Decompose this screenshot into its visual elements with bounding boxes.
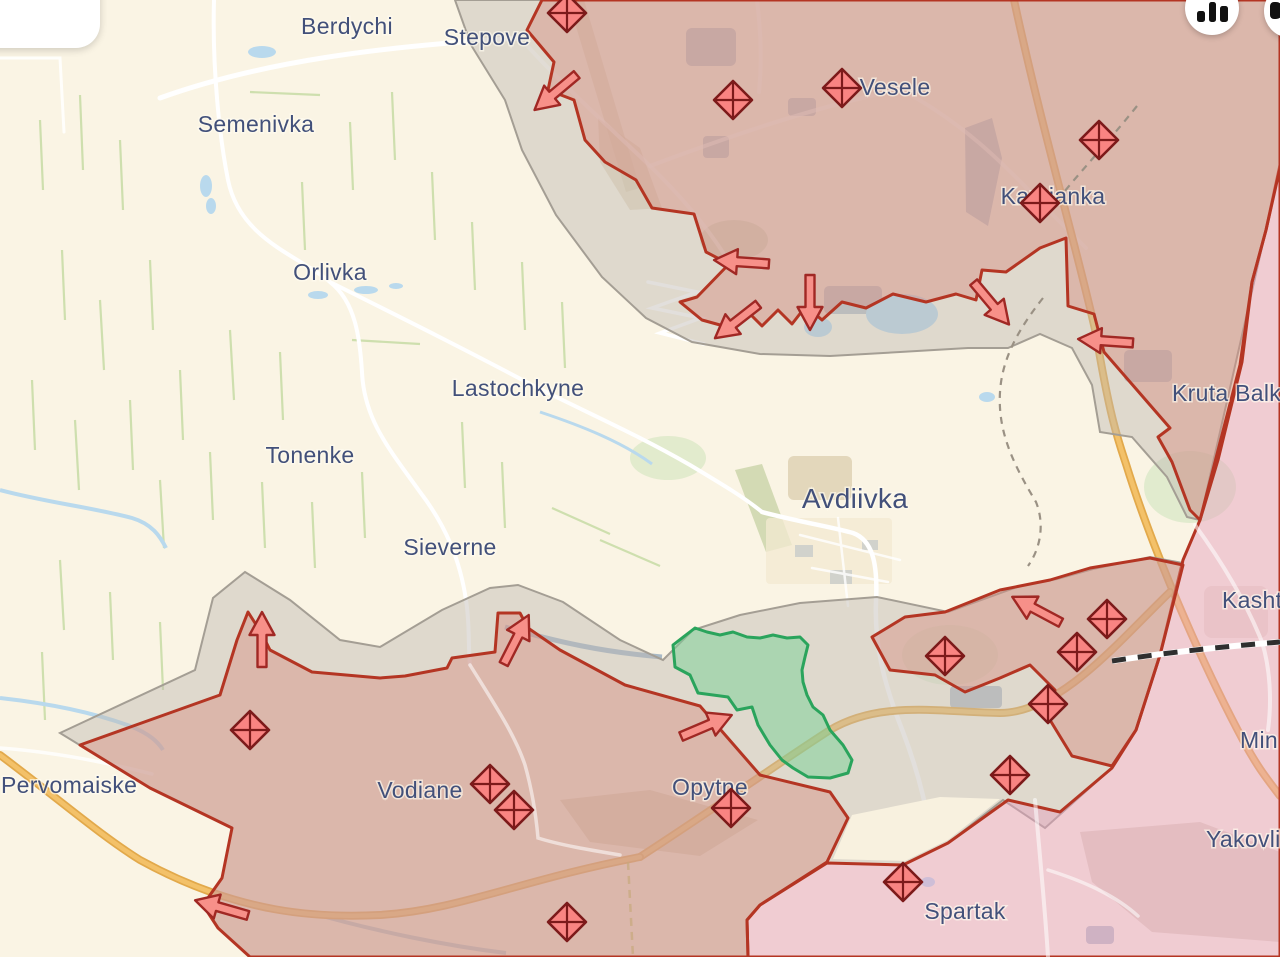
place-label-tonenke: Tonenke xyxy=(265,442,354,468)
place-label-sieverne: Sieverne xyxy=(403,534,496,560)
place-label-spartak: Spartak xyxy=(924,898,1006,924)
place-label-orlivka: Orlivka xyxy=(293,259,367,285)
war-map-canvas[interactable]: BerdychiStepoveSemenivkaOrlivkaLastochky… xyxy=(0,0,1280,957)
place-label-pervomaiske: Pervomaiske xyxy=(1,772,137,798)
map-app: BerdychiStepoveSemenivkaOrlivkaLastochky… xyxy=(0,0,1280,957)
place-label-berdychi: Berdychi xyxy=(301,13,393,39)
place-label-min: Min xyxy=(1240,727,1278,753)
place-label-lastochkyne: Lastochkyne xyxy=(452,375,584,401)
bar-chart-icon xyxy=(1197,2,1228,22)
partial-glyph-icon xyxy=(1270,2,1280,19)
place-label-stepove: Stepove xyxy=(444,24,531,50)
top-left-card[interactable] xyxy=(0,0,100,48)
place-label-semenivka: Semenivka xyxy=(198,111,314,137)
place-label-kruta-balka: Kruta Balk xyxy=(1172,380,1280,406)
place-label-avdiivka: Avdiivka xyxy=(802,483,908,514)
place-label-vesele: Vesele xyxy=(860,74,931,100)
place-label-vodiane: Vodiane xyxy=(377,777,462,803)
place-label-yakovli: Yakovli xyxy=(1206,826,1280,852)
place-label-kasht: Kasht xyxy=(1222,587,1280,613)
